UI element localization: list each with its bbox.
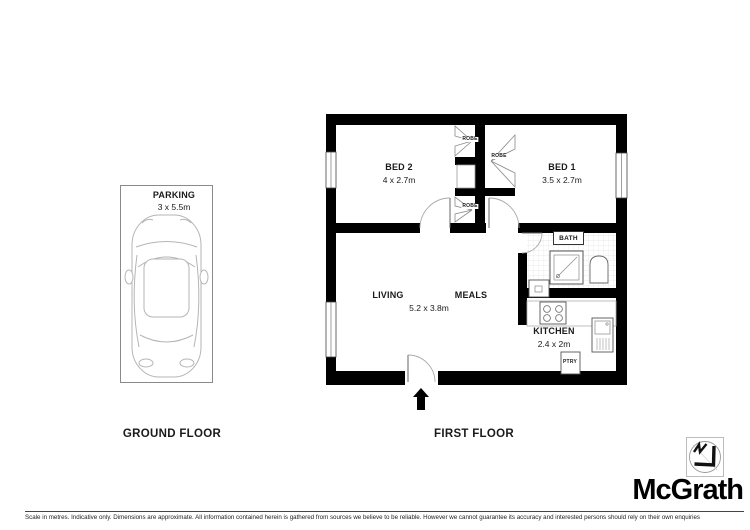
- bed2-dims: 4 x 2.7m: [383, 176, 416, 185]
- car-mirror-right: [200, 270, 208, 284]
- disclaimer-text: Scale in metres. Indicative only. Dimens…: [25, 514, 747, 521]
- meals-label: MEALS: [455, 291, 488, 300]
- bed1-door: [489, 198, 519, 228]
- robe-middle-cupboard: [457, 165, 475, 188]
- living-label: LIVING: [372, 291, 403, 300]
- robe-bottom-label: ROBE: [461, 204, 478, 209]
- window-bed1-right: [616, 153, 627, 198]
- stove: [540, 302, 566, 324]
- footer-divider: [25, 511, 744, 512]
- bath-label: BATH: [553, 231, 584, 245]
- bed2-door: [420, 198, 450, 228]
- entry-door: [408, 355, 435, 382]
- first-floor-title: FIRST FLOOR: [434, 428, 514, 440]
- floorplan-page: PARKING 3 x 5.5m: [0, 0, 750, 530]
- bed1-label: BED 1: [548, 163, 576, 172]
- mcgrath-wordmark: McGrath: [632, 474, 743, 507]
- parking-dims: 3 x 5.5m: [158, 203, 191, 212]
- parking-label: PARKING: [153, 191, 195, 200]
- bed1-dims: 3.5 x 2.7m: [542, 176, 582, 185]
- window-bed2-left: [326, 152, 336, 188]
- robe-top-label: ROBE: [461, 137, 478, 142]
- parking-plan: [120, 185, 213, 383]
- window-living-left: [326, 302, 336, 357]
- kitchen-sink: [592, 318, 613, 352]
- shower: [550, 251, 583, 284]
- entry-arrow-icon: [413, 388, 429, 410]
- car-mirror-left: [125, 270, 133, 284]
- toilet: [590, 256, 608, 283]
- ground-floor-title: GROUND FLOOR: [123, 428, 221, 440]
- north-compass-icon: [686, 437, 724, 477]
- bath-sink: [529, 280, 549, 297]
- pantry-label: PTRY: [563, 360, 577, 365]
- robe-right-label: ROBE: [490, 154, 507, 159]
- living-meals-dims: 5.2 x 3.8m: [409, 304, 449, 313]
- kitchen-dims: 2.4 x 2m: [538, 340, 571, 349]
- first-floor-plan: [318, 105, 630, 417]
- car-top-view: [125, 215, 208, 377]
- bed2-label: BED 2: [385, 163, 413, 172]
- kitchen-label: KITCHEN: [533, 327, 574, 336]
